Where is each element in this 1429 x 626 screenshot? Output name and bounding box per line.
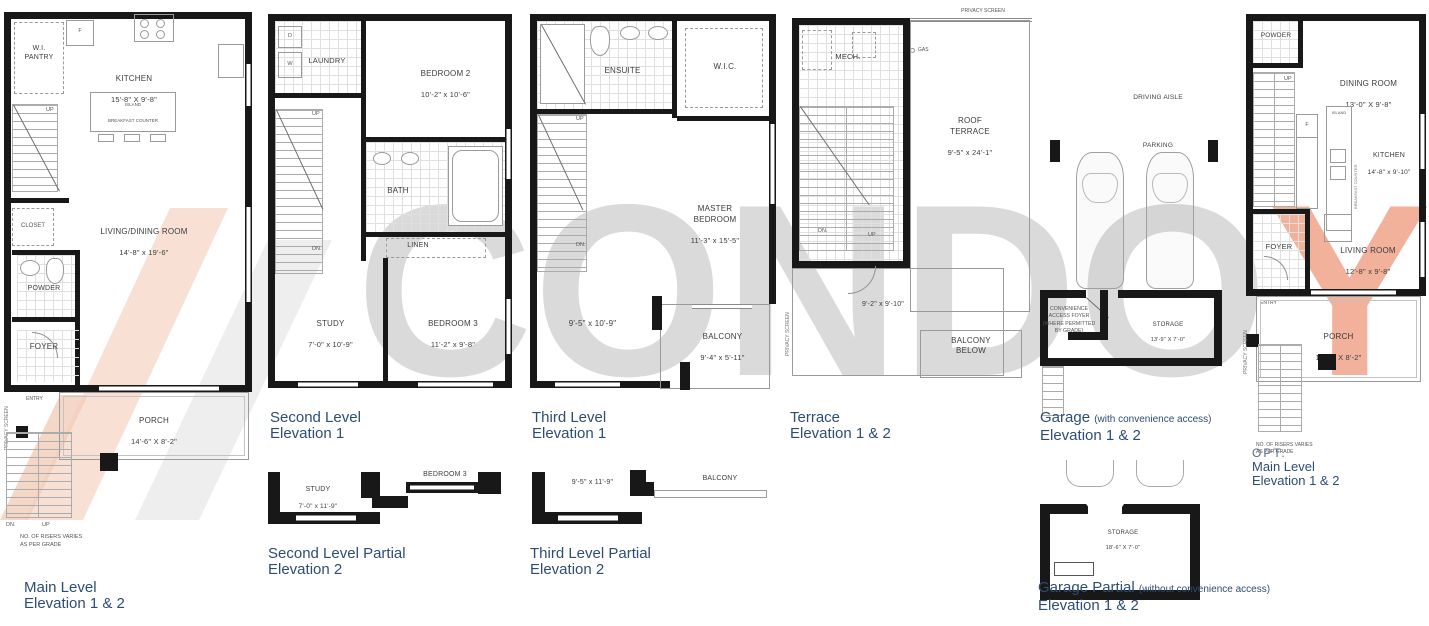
car-windshield — [1082, 173, 1118, 203]
room-label-living-dining: LIVING/DINING ROOM 14'-8" x 19'-6" — [74, 217, 214, 268]
wall — [677, 116, 776, 121]
room-label-mech: MECH. — [818, 52, 878, 62]
car-outline-partial — [1066, 460, 1114, 487]
room-dim: 7'-0" x 10'-9" — [283, 340, 378, 350]
stair-up-label: UP — [46, 107, 54, 115]
wall — [1100, 290, 1108, 336]
toilet — [46, 258, 64, 284]
window — [246, 64, 251, 106]
bath-sink — [401, 152, 419, 165]
plan-title-line: Elevation 1 — [532, 426, 606, 442]
room-label-balcony: BALCONY — [680, 474, 760, 483]
plan-title-line: Terrace — [790, 410, 891, 426]
kitchen-island — [90, 92, 176, 132]
privacy-screen-left-label: PRIVACY SCREEN — [785, 286, 791, 356]
plan-title-note: (without convenience access) — [1139, 584, 1270, 595]
room-label-ensuite: ENSUITE — [585, 66, 660, 76]
window — [506, 129, 511, 179]
wall — [361, 472, 380, 498]
plan-title-second-level: Second Level Elevation 1 — [270, 410, 361, 442]
ensuite-sink — [620, 26, 640, 40]
plan-title-opt: OPT. — [1252, 446, 1339, 460]
wall — [672, 21, 677, 118]
wall — [1118, 290, 1222, 298]
stair-up-label: UP — [1284, 76, 1292, 84]
room-dim: 12'-8" x 9'-8" — [1318, 267, 1418, 277]
wall — [372, 496, 408, 508]
stair-rail — [1280, 344, 1281, 432]
room-name: BEDROOM 3 — [403, 319, 503, 329]
parking-post — [1050, 140, 1060, 162]
stair-up-label: UP — [576, 116, 584, 124]
room-label-wi-pantry: W.I. PANTRY — [12, 44, 66, 62]
plan-title-text: Garage — [1040, 409, 1090, 426]
plan-title-line: Elevation 1 & 2 — [1038, 598, 1270, 614]
wall — [903, 18, 910, 268]
room-label-powder: POWDER — [12, 284, 76, 293]
window — [558, 515, 618, 521]
burner-icon — [156, 19, 165, 28]
room-label-bedroom3: BEDROOM 3 — [406, 470, 484, 479]
island-sink — [1330, 149, 1346, 163]
room-label-study: STUDY 7'-0" x 11'-9" — [282, 476, 354, 521]
room-dim: 11'-3" x 15'-5" — [660, 236, 770, 246]
bath-sink — [373, 152, 391, 165]
room-name: PORCH — [59, 416, 249, 426]
room-name: STORAGE — [1128, 322, 1208, 330]
plan-title-line: Elevation 2 — [530, 562, 651, 578]
window — [506, 299, 511, 354]
island-sink — [1330, 166, 1346, 180]
room-dim: 14'-8" x 19'-6" — [74, 248, 214, 258]
floor-plan-garage: DRIVING AISLE PARKING CONVENIENCE ACCESS… — [1038, 14, 1238, 458]
plan-title-second-partial: Second Level Partial Elevation 2 — [268, 546, 406, 578]
wall — [12, 317, 80, 322]
room-name: KITCHEN — [74, 74, 194, 84]
room-dim: 10'-2" x 10'-6" — [388, 90, 503, 100]
room-name: ROOF TERRACE — [930, 116, 1010, 137]
stove — [134, 14, 174, 42]
room-label-porch: PORCH 14'-6" X 8'-2" — [59, 406, 249, 457]
plan-title-third-level: Third Level Elevation 1 — [532, 410, 606, 442]
room-name: LIVING ROOM — [1318, 246, 1418, 256]
room-dim: 11'-2" x 9'-8" — [403, 340, 503, 350]
room-dim: 14'-6" X 8'-2" — [59, 437, 249, 447]
privacy-screen-top-label: PRIVACY SCREEN — [938, 8, 1028, 15]
porch-post — [100, 453, 118, 471]
plan-title-text: Garage Partial — [1038, 579, 1135, 596]
porch-post — [1318, 354, 1336, 370]
car-outline — [1146, 152, 1194, 289]
floor-plan-garage-partial: STORAGE 18'-6" X 7'-0" Garage Partial (w… — [1038, 460, 1273, 626]
patio-door-window — [1311, 290, 1396, 295]
stair-dn-label: DN. — [576, 242, 585, 250]
driving-aisle-label: DRIVING AISLE — [1108, 94, 1208, 102]
room-name: BALCONY — [675, 332, 770, 342]
window — [418, 382, 493, 387]
parking-post — [1208, 140, 1218, 162]
floor-plan-main-level: W.I. PANTRY F KITCHEN 15'-8" X 9'-8" ISL… — [4, 12, 260, 624]
room-label-balcony-below: BALCONY BELOW — [920, 336, 1022, 357]
window — [1420, 114, 1425, 169]
balcony-rail — [654, 490, 767, 498]
floor-plan-second-level-partial: STUDY 7'-0" x 11'-9" BEDROOM 3 Second Le… — [268, 468, 518, 618]
risers-note: NO. OF RISERS VARIES AS PER GRADE — [20, 534, 115, 549]
wall — [1040, 358, 1222, 366]
fridge-label: F — [1296, 122, 1318, 130]
floor-plan-third-level: ENSUITE W.I.C. UP DN. MASTER BEDROOM 11'… — [530, 14, 780, 454]
island-label: ISLAND — [1324, 110, 1354, 116]
mech-equipment — [802, 30, 832, 70]
plan-title-third-partial: Third Level Partial Elevation 2 — [530, 546, 651, 578]
wall — [1298, 21, 1303, 68]
wall — [1122, 504, 1200, 514]
stair-up-label: UP — [42, 522, 50, 530]
room-name: STORAGE — [1083, 530, 1163, 538]
room-label-kitchen: KITCHEN 14'-8" x 9'-10" — [1358, 142, 1420, 187]
room-name: BEDROOM 2 — [388, 69, 503, 79]
island-label: ISLAND — [90, 102, 176, 108]
room-label-balcony: BALCONY 9'-4" x 5'-11" — [675, 322, 770, 373]
car-windshield — [1152, 173, 1188, 203]
terrace-dim: 9'-2" x 9'-10" — [833, 300, 933, 309]
powder-sink — [20, 260, 40, 276]
plan-title-line: Elevation 1 & 2 — [1040, 428, 1212, 444]
burner-icon — [140, 19, 149, 28]
floor-plan-second-level: D W LAUNDRY BEDROOM 2 10'-2" x 10'-6" UP… — [268, 14, 518, 454]
wall — [652, 296, 662, 330]
wall — [640, 482, 654, 496]
room-name: STUDY — [283, 319, 378, 329]
floor-plan-opt-main-level: POWDER UP DINING ROOM 13'-0" X 9'-8" F I… — [1246, 14, 1429, 624]
room-dim: 9'-4" x 5'-11" — [675, 353, 770, 363]
window — [298, 382, 358, 387]
window — [770, 124, 775, 204]
room-label-laundry: LAUNDRY — [294, 56, 360, 66]
plan-title-line: Main Level — [24, 580, 125, 596]
privacy-screen-label: PRIVACY SCREEN — [1243, 309, 1249, 374]
plan-title-line: Garage (with convenience access) — [1040, 410, 1212, 428]
breakfast-counter-label: BREAKFAST COUNTER — [90, 118, 176, 124]
room-label-bedroom2: BEDROOM 2 10'-2" x 10'-6" — [388, 59, 503, 110]
room-label-foyer: FOYER — [1254, 242, 1304, 252]
fridge-label: F — [66, 28, 94, 36]
wall — [268, 14, 275, 388]
room-label-bath: BATH — [368, 186, 428, 196]
wall-notch — [1054, 562, 1094, 576]
room-name: STUDY — [282, 485, 354, 494]
balcony-area-dim: 9'-5" x 11'-9" — [555, 478, 630, 487]
floor-plan-terrace: PRIVACY SCREEN MECH. GAS ROOF TERRACE 9'… — [788, 6, 1038, 456]
wall — [4, 12, 252, 19]
window — [555, 382, 620, 387]
room-label-master-bedroom: MASTER BEDROOM 11'-3" x 15'-5" — [660, 194, 770, 256]
patio-door-window — [99, 386, 219, 391]
stair-dn-label: DN. — [312, 246, 321, 254]
wall — [275, 93, 366, 98]
room-name: MASTER BEDROOM — [660, 204, 770, 225]
room-dim: 13'-9" X 7'-0" — [1128, 337, 1208, 344]
wall — [1253, 63, 1303, 68]
wall — [1246, 14, 1253, 296]
wall — [1246, 14, 1426, 21]
wall — [268, 14, 512, 21]
window — [1420, 222, 1425, 277]
stair-rail — [1274, 72, 1275, 207]
plan-title-terrace: Terrace Elevation 1 & 2 — [790, 410, 891, 442]
plan-title-garage: Garage (with convenience access) Elevati… — [1040, 410, 1212, 444]
powder-floor — [1253, 21, 1299, 63]
balcony-door — [692, 304, 752, 309]
plan-title-line: Second Level Partial — [268, 546, 406, 562]
dryer-label: D — [278, 33, 302, 41]
room-name: DINING ROOM — [1316, 79, 1421, 89]
room-label-wic: W.I.C. — [690, 62, 760, 72]
burner-icon — [156, 30, 165, 39]
stool — [124, 134, 140, 142]
plan-title-line: Garage Partial (without convenience acce… — [1038, 580, 1270, 598]
wall — [530, 14, 537, 388]
room-label-living: LIVING ROOM 12'-8" x 9'-8" — [1318, 236, 1418, 287]
floor-plan-third-level-partial: 9'-5" x 11'-9" BALCONY Third Level Parti… — [530, 468, 780, 618]
plan-title-line: Elevation 1 & 2 — [24, 596, 125, 612]
plan-title-garage-partial: Garage Partial (without convenience acce… — [1038, 580, 1270, 614]
plan-title-line: Elevation 1 & 2 — [790, 426, 891, 442]
room-dim: 14'-8" x 9'-10" — [1358, 169, 1420, 177]
stool — [98, 134, 114, 142]
convenience-foyer-label: CONVENIENCE ACCESS FOYER (WHERE PERMITTE… — [1038, 306, 1100, 335]
stair-dn-label: DN. — [818, 228, 827, 236]
toilet — [590, 26, 610, 56]
wall — [383, 258, 388, 383]
wall — [530, 14, 776, 21]
room-label-storage: STORAGE 18'-6" X 7'-0" — [1083, 522, 1163, 560]
plan-title-line: Third Level Partial — [530, 546, 651, 562]
stair-up-label: UP — [868, 232, 876, 240]
wall — [792, 18, 910, 25]
entry-label: ENTRY — [26, 396, 43, 403]
exterior-stairs — [6, 432, 72, 518]
ensuite-sink — [648, 26, 668, 40]
wall — [1305, 209, 1310, 296]
room-label-roof-terrace: ROOF TERRACE 9'-5" x 24'-1" — [930, 106, 1010, 168]
room-label-study: STUDY 7'-0" x 10'-9" — [283, 309, 378, 360]
room-name: KITCHEN — [1358, 151, 1420, 160]
plan-title-note: (with convenience access) — [1094, 414, 1211, 425]
window — [410, 485, 474, 490]
bathtub-inner — [452, 150, 499, 222]
room-dim: 7'-0" x 11'-9" — [282, 503, 354, 511]
plan-title-line: Elevation 1 — [270, 426, 361, 442]
room-label-powder: POWDER — [1251, 32, 1301, 40]
burner-icon — [140, 30, 149, 39]
room-dim: 18'-6" X 7'-0" — [1083, 545, 1163, 552]
plan-title-line: Third Level — [532, 410, 606, 426]
wall — [11, 198, 69, 203]
plan-title-main-level: Main Level Elevation 1 & 2 — [24, 580, 125, 612]
wall — [4, 12, 11, 392]
window — [246, 207, 251, 302]
room-label-closet: CLOSET — [12, 222, 54, 230]
room-label-linen: LINEN — [388, 241, 448, 250]
stair-rail — [38, 432, 39, 518]
car-outline — [1076, 152, 1124, 289]
plan-title-line: Second Level — [270, 410, 361, 426]
parking-label: PARKING — [1118, 142, 1198, 150]
wall — [1214, 290, 1222, 366]
room-name: PORCH — [1256, 332, 1421, 342]
wall — [361, 232, 505, 237]
floor-plan-sheet: { "watermark": { "gray_text": "CONDO", "… — [0, 0, 1429, 626]
stair-rail — [846, 106, 847, 251]
room-label-bedroom3: BEDROOM 3 11'-2" x 9'-8" — [403, 309, 503, 360]
stair-up-label: UP — [312, 111, 320, 119]
room-dim: 9'-5" x 24'-1" — [930, 148, 1010, 158]
stair-dn-label: DN. — [6, 522, 15, 530]
car-outline-partial — [1136, 460, 1184, 487]
room-name: LIVING/DINING ROOM — [74, 227, 214, 237]
stool — [150, 134, 166, 142]
wall — [792, 18, 799, 268]
open-area-dim: 9'-5" x 10'-9" — [545, 319, 640, 329]
kitchen-sink — [218, 44, 244, 78]
room-label-storage: STORAGE 13'-9" X 7'-0" — [1128, 314, 1208, 352]
plan-title-line: Elevation 2 — [268, 562, 406, 578]
